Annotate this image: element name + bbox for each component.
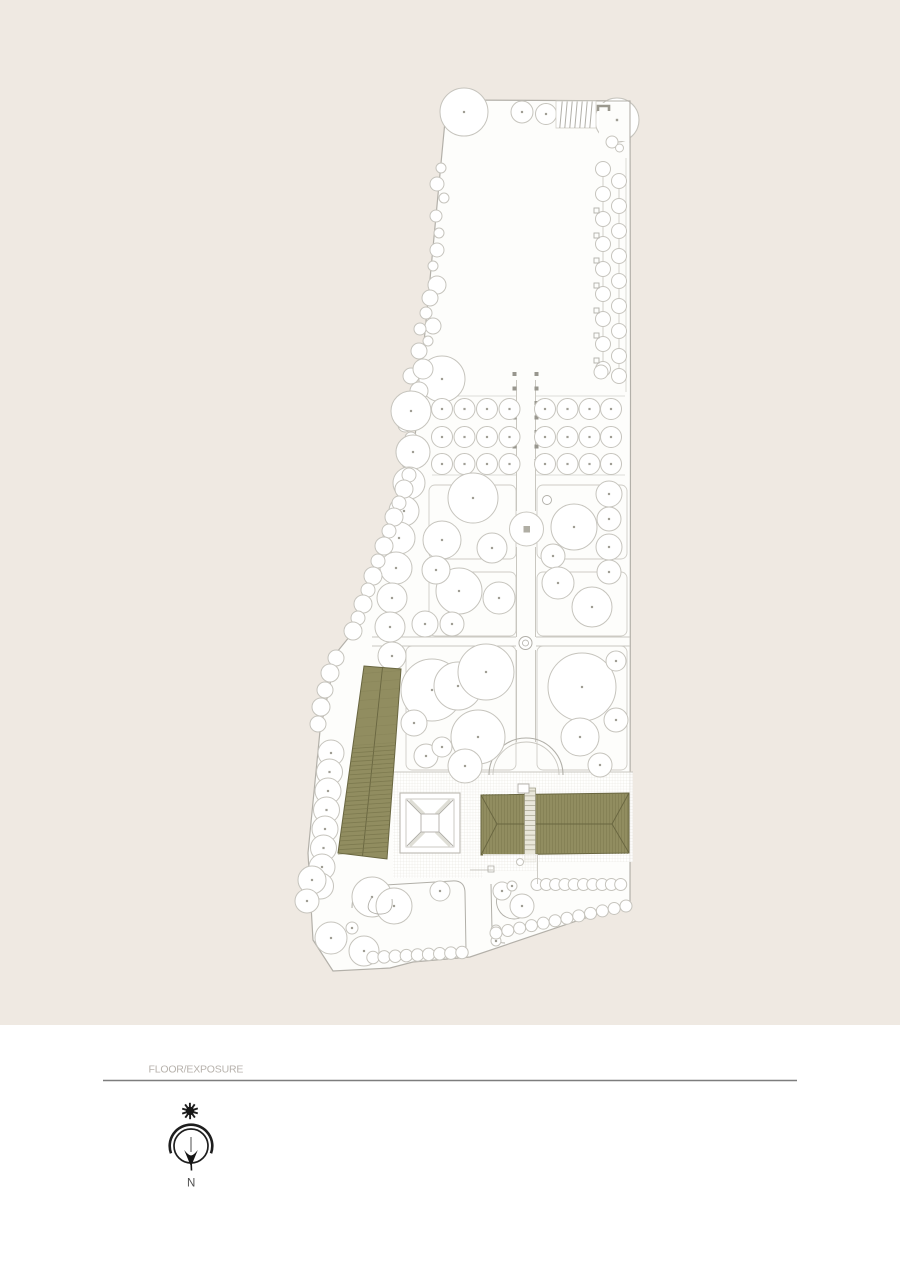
- svg-text:FLOOR/EXPOSURE: FLOOR/EXPOSURE: [149, 1064, 244, 1076]
- svg-text:N: N: [187, 1178, 195, 1190]
